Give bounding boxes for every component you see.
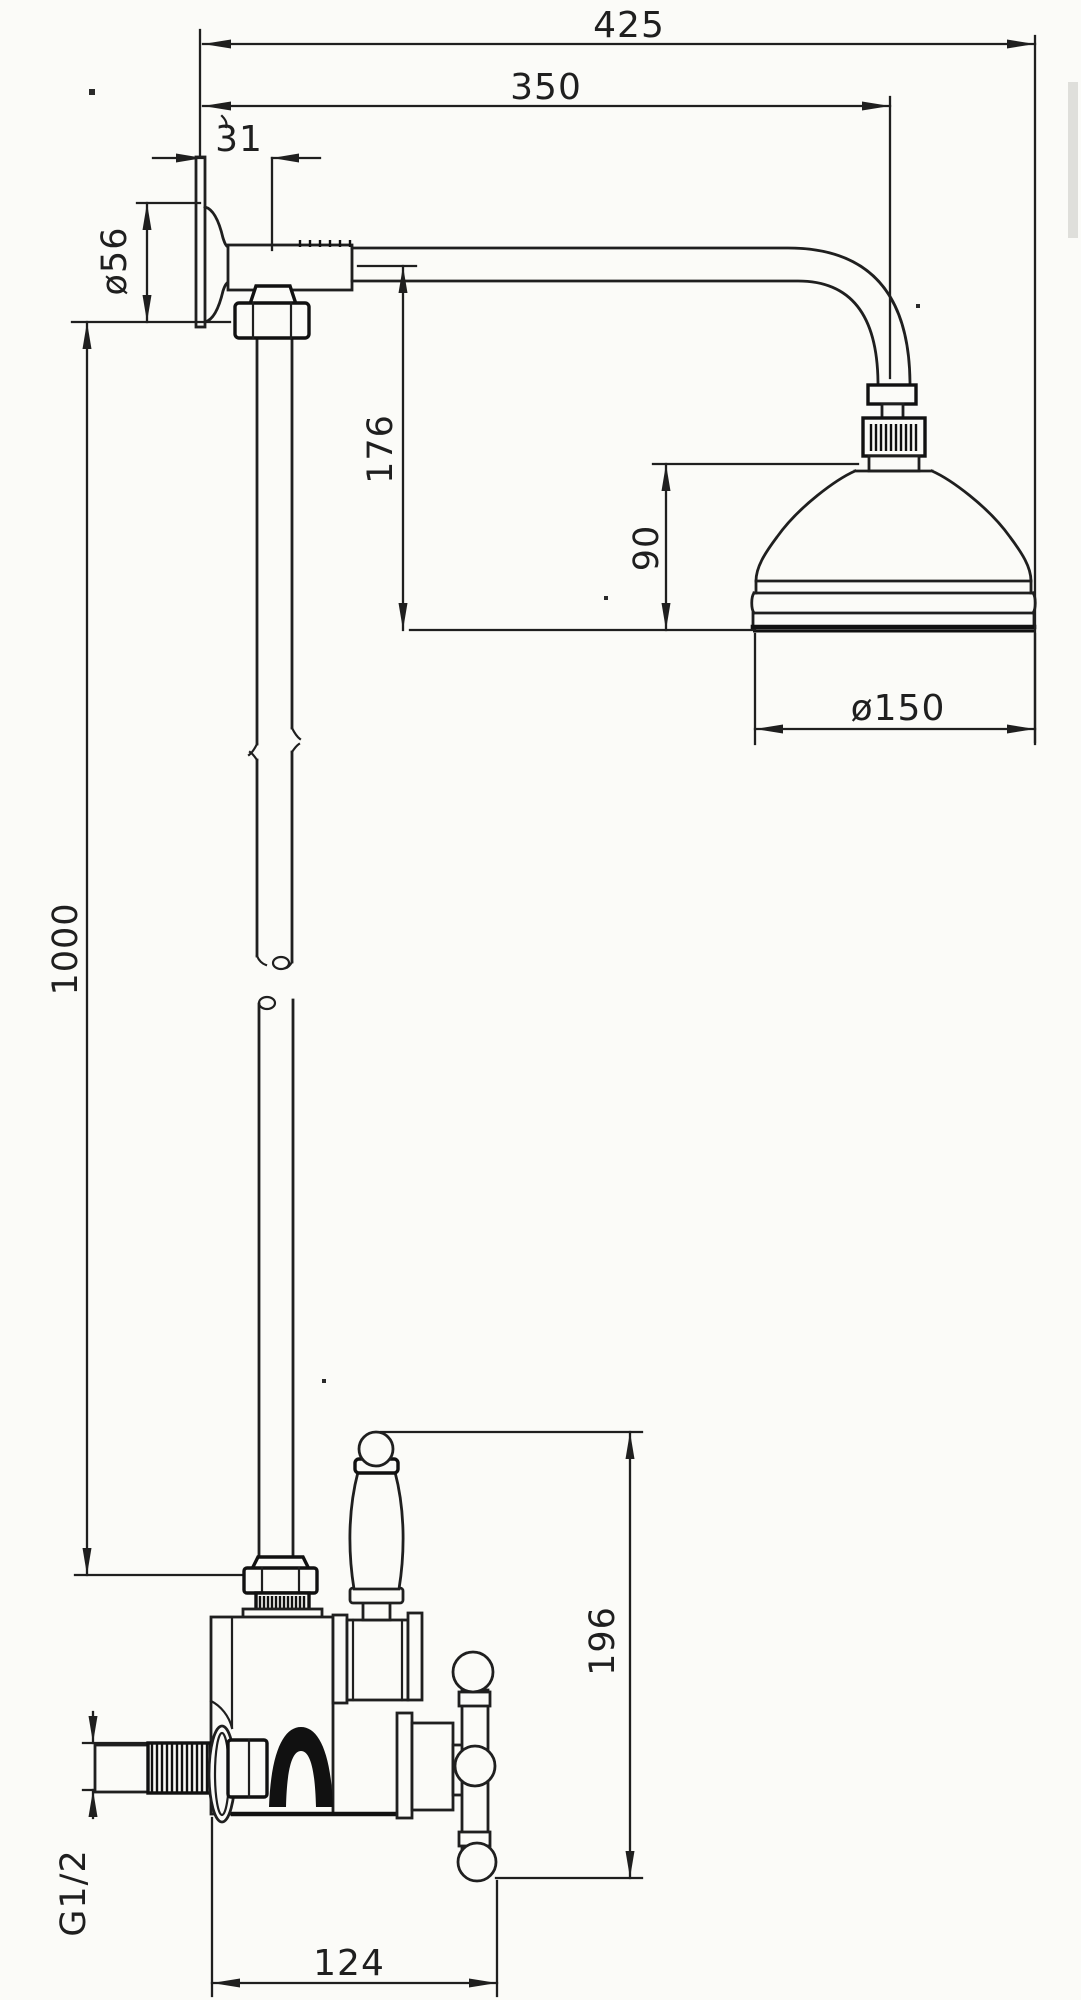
arrowhead [143,203,152,230]
dim-label-350: 350 [510,67,582,108]
riser-pipe [249,338,300,1560]
arrowhead [626,1851,635,1878]
dim-label-90: 90 [627,525,667,572]
arrowhead [1007,725,1035,734]
dim-label-56: ø56 [95,227,135,296]
arrowhead [83,322,92,349]
lever-handle [350,1432,403,1620]
shower-head [752,471,1036,631]
arrowhead [755,725,783,734]
dim-label-196: 196 [583,1606,623,1676]
riser-break2-dot-a [273,957,289,969]
arrowhead [89,1790,98,1817]
cross-handle [453,1652,496,1881]
arm-inner-line [352,281,878,385]
riser-tee-nut [235,286,309,338]
arrowhead [399,266,408,293]
bell-band-3 [753,613,1034,626]
dim-label-425: 425 [593,5,665,46]
arrowhead [626,1432,635,1459]
cartridge-block [347,1620,408,1700]
arrowhead [399,603,408,630]
handle-ball-bottom [458,1843,496,1881]
riser-lower-segment [259,1000,293,1560]
wall-plate [196,157,205,327]
arrowhead [1007,40,1035,49]
arm-cover-tube [228,245,352,290]
technical-drawing-page: 425 350 31 ø56 176 [0,0,1081,2000]
arrowhead [662,603,671,630]
riser-upper-segment [257,338,292,744]
dim-176: 176 [358,266,416,630]
cartridge-flange-right [408,1613,422,1700]
speck [89,89,95,95]
lever-grip [350,1472,403,1589]
dim-124: 124 [212,1818,497,1996]
handle-collar-top [459,1692,490,1706]
dim-label-31: 31 [215,119,263,160]
dim-label-150: ø150 [851,688,946,729]
arrowhead [469,1979,497,1988]
handle-ball-hub [455,1746,495,1786]
bell-band-1 [756,581,1031,593]
riser-union-nut [244,1557,317,1612]
dim-label-176: 176 [361,414,401,484]
speck [916,304,920,308]
arrowhead [143,295,152,322]
arrowhead [83,1548,92,1575]
cartridge-flange-left [333,1615,347,1703]
inlet-hex-nut [228,1740,267,1797]
edge-sliver [1068,82,1078,238]
arrowhead [203,102,231,111]
union-nut [868,385,916,404]
lever-ball [359,1432,393,1466]
side-port-flange [397,1713,412,1818]
nut-hex [244,1568,317,1593]
riser-mid-segment [257,752,292,962]
valve-assembly [95,1432,496,1881]
dim-label-124: 124 [313,1943,385,1984]
bell-bulge-sides [752,593,1036,613]
dim-150: ø150 [755,634,1035,744]
flange-trumpet-outline [205,207,228,322]
speck [322,1379,326,1383]
dim-1000: 1000 [46,322,245,1575]
dim-label-g12: G1/2 [54,1849,94,1936]
inlet-pipe-plain [95,1745,148,1792]
union-lower-neck [869,456,919,471]
dim-90: 90 [410,464,858,630]
arrowhead [89,1716,98,1743]
dim-31: 31 [153,116,320,250]
shower-arm [352,248,910,385]
union-nut-neck [882,404,903,418]
shower-set-drawing: 425 350 31 ø56 176 [0,0,1081,2000]
side-port-cylinder [412,1723,453,1810]
speck [604,596,608,600]
riser-break2-dot-b [259,997,275,1009]
arrowhead [212,1979,240,1988]
arrowhead [203,40,231,49]
arrowhead [662,464,671,491]
handle-ball-top [453,1652,493,1692]
arm-outer-line [352,248,910,385]
tee-nut-hex [235,303,309,338]
arrowhead [862,102,890,111]
dim-label-1000: 1000 [46,902,86,995]
bell-outline [756,471,1031,581]
arrowhead [272,154,299,163]
head-union [863,385,925,471]
